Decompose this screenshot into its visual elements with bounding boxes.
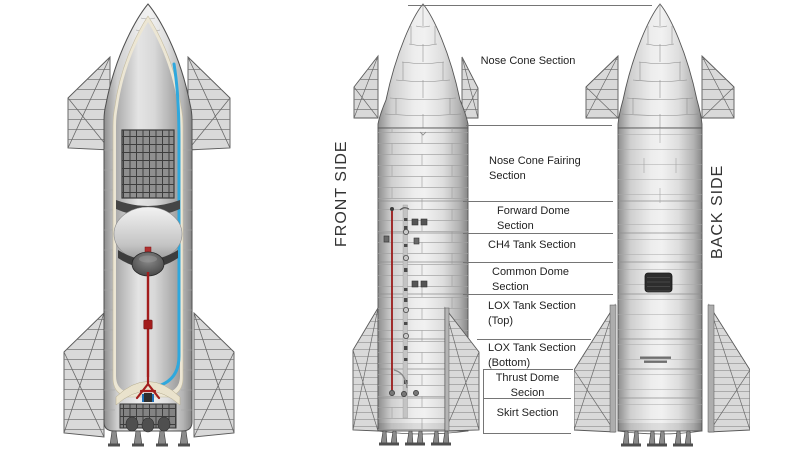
- nose-cone: [618, 4, 702, 128]
- landing-legs: [108, 431, 190, 445]
- cutaway-interior: [113, 16, 183, 432]
- section-divider-line-top: [408, 5, 652, 6]
- section-label-lox-tank-bottom: LOX Tank Section (Bottom): [488, 341, 593, 371]
- section-label-common-dome: Common Dome Section: [492, 265, 592, 295]
- landing-legs: [379, 431, 451, 444]
- section-label-thrust-dome: Thrust Dome Secion: [483, 371, 572, 401]
- section-label-lox-tank-top: LOX Tank Section (Top): [488, 299, 593, 329]
- section-divider-line: [477, 339, 591, 340]
- starship-sections-diagram: FRONT SIDE BACK SIDE Nose Cone Section N…: [0, 0, 800, 450]
- section-label-ch4-tank: CH4 Tank Section: [488, 238, 618, 253]
- section-divider-line: [483, 433, 571, 434]
- rear-flap-left: [353, 308, 378, 431]
- front-side-label: FRONT SIDE: [330, 128, 354, 260]
- engine-bay: [120, 404, 176, 432]
- section-label-skirt: Skirt Section: [483, 406, 572, 421]
- section-divider-line: [463, 201, 613, 202]
- cutaway-view-illustration: [58, 0, 240, 450]
- section-divider-line: [463, 262, 613, 263]
- section-label-forward-dome: Forward Dome Section: [497, 204, 592, 234]
- heat-shield-tile-patch: [645, 273, 672, 292]
- nose-cone: [378, 4, 468, 128]
- section-divider-line: [466, 125, 612, 126]
- back-side-label: BACK SIDE: [706, 158, 730, 266]
- section-label-nose-cone-fairing: Nose Cone Fairing Section: [489, 154, 594, 184]
- section-label-nose-cone: Nose Cone Section: [463, 54, 593, 69]
